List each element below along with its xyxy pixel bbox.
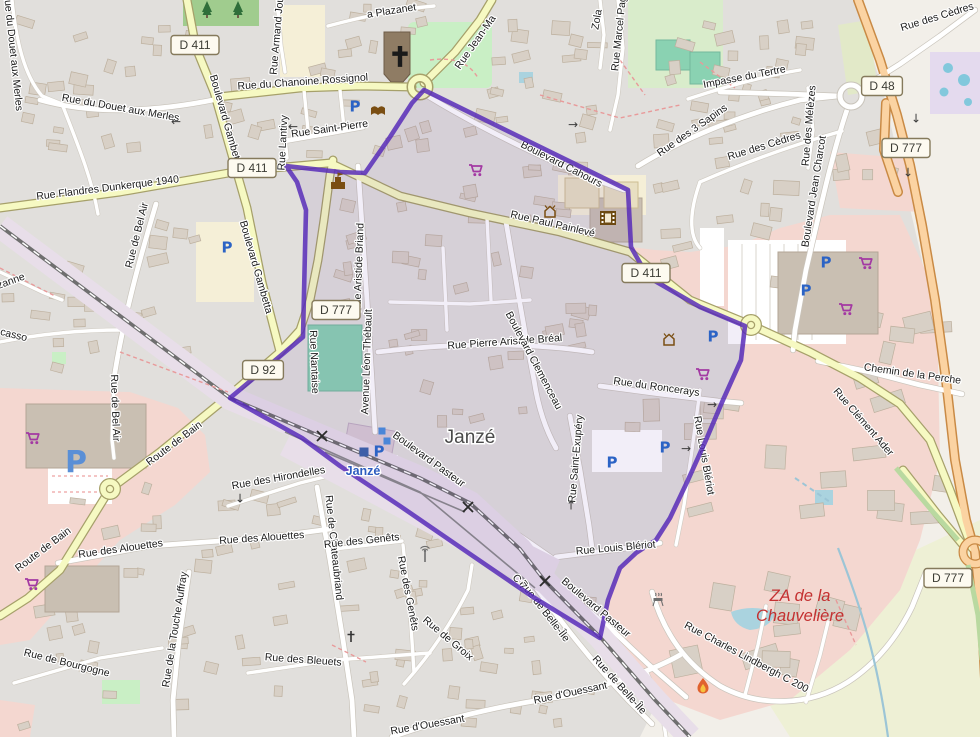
zone-label-line1: ZA de la (769, 587, 831, 605)
station-label: Janzé (346, 464, 381, 478)
road-shield: D 777 (924, 569, 972, 588)
arrow-right-icon: → (707, 397, 717, 411)
street-label: Rue Nantaise (307, 330, 321, 394)
platform-icon (384, 438, 391, 445)
arrow-right-icon: → (568, 117, 578, 131)
svg-text:↓: ↓ (235, 491, 245, 505)
parking-icon: P (222, 238, 233, 256)
street-label: Rue de Bel Air (108, 374, 122, 442)
parking-icon: P (607, 453, 618, 471)
road-shield-ref: D 777 (320, 303, 352, 317)
svg-text:←: ← (288, 119, 298, 133)
svg-text:P: P (821, 253, 832, 271)
platform-icon (379, 428, 386, 435)
road-shield-ref: D 411 (179, 38, 210, 52)
svg-text:P: P (801, 281, 812, 299)
parking-icon: P (660, 438, 671, 456)
map-viewport[interactable]: Boulevard CahoursRue Louis BlériotRue de… (0, 0, 980, 737)
arrow-down-icon: ↓ (911, 111, 921, 125)
road-shield: D 777 (312, 301, 360, 320)
cinema-icon (600, 211, 616, 225)
parking-icon: P (801, 281, 812, 299)
arrow-left-icon: ← (171, 114, 181, 128)
svg-text:→: → (681, 441, 691, 455)
road-shield: D 777 (882, 139, 930, 158)
road-shield-ref: D 777 (890, 141, 922, 155)
svg-text:P: P (708, 327, 719, 345)
parking-icon: P (821, 253, 832, 271)
svg-text:P: P (660, 438, 671, 456)
parking-big-icon: P (65, 445, 87, 480)
parking-icon: P (708, 327, 719, 345)
arrow-left-icon: ← (288, 119, 298, 133)
parking-icon: P (374, 442, 385, 460)
road-shield-ref: D 48 (869, 79, 895, 93)
svg-text:P: P (65, 445, 87, 480)
arrow-down-icon: ↓ (235, 491, 245, 505)
svg-text:P: P (607, 453, 618, 471)
arrow-down-icon: ↓ (903, 165, 913, 179)
svg-text:→: → (568, 117, 578, 131)
svg-text:←: ← (171, 114, 181, 128)
road-shield: D 411 (622, 264, 670, 283)
svg-text:↓: ↓ (903, 165, 913, 179)
arrow-up-icon: ↑ (566, 498, 576, 512)
svg-text:P: P (350, 97, 361, 115)
svg-text:↑: ↑ (566, 498, 576, 512)
zone-label-line2: Chauvelière (756, 607, 844, 625)
pools-area (930, 52, 980, 114)
road-shield-ref: D 411 (630, 266, 661, 280)
road-shield-ref: D 411 (236, 161, 267, 175)
svg-text:↓: ↓ (911, 111, 921, 125)
church-building (384, 32, 410, 82)
road-shield: D 411 (228, 159, 276, 178)
svg-text:P: P (374, 442, 385, 460)
parking-icon: P (350, 97, 361, 115)
road-shield: D 411 (171, 36, 219, 55)
svg-text:→: → (707, 397, 717, 411)
osm-map[interactable]: Boulevard CahoursRue Louis BlériotRue de… (0, 0, 980, 737)
road-shield: D 48 (862, 77, 903, 96)
town-label: Janzé (445, 427, 496, 448)
road-shield: D 92 (243, 361, 284, 380)
arrow-right-icon: → (681, 441, 691, 455)
road-shield-ref: D 777 (932, 571, 964, 585)
platform-dark-icon (360, 448, 369, 457)
svg-text:P: P (222, 238, 233, 256)
road-shield-ref: D 92 (250, 363, 276, 377)
